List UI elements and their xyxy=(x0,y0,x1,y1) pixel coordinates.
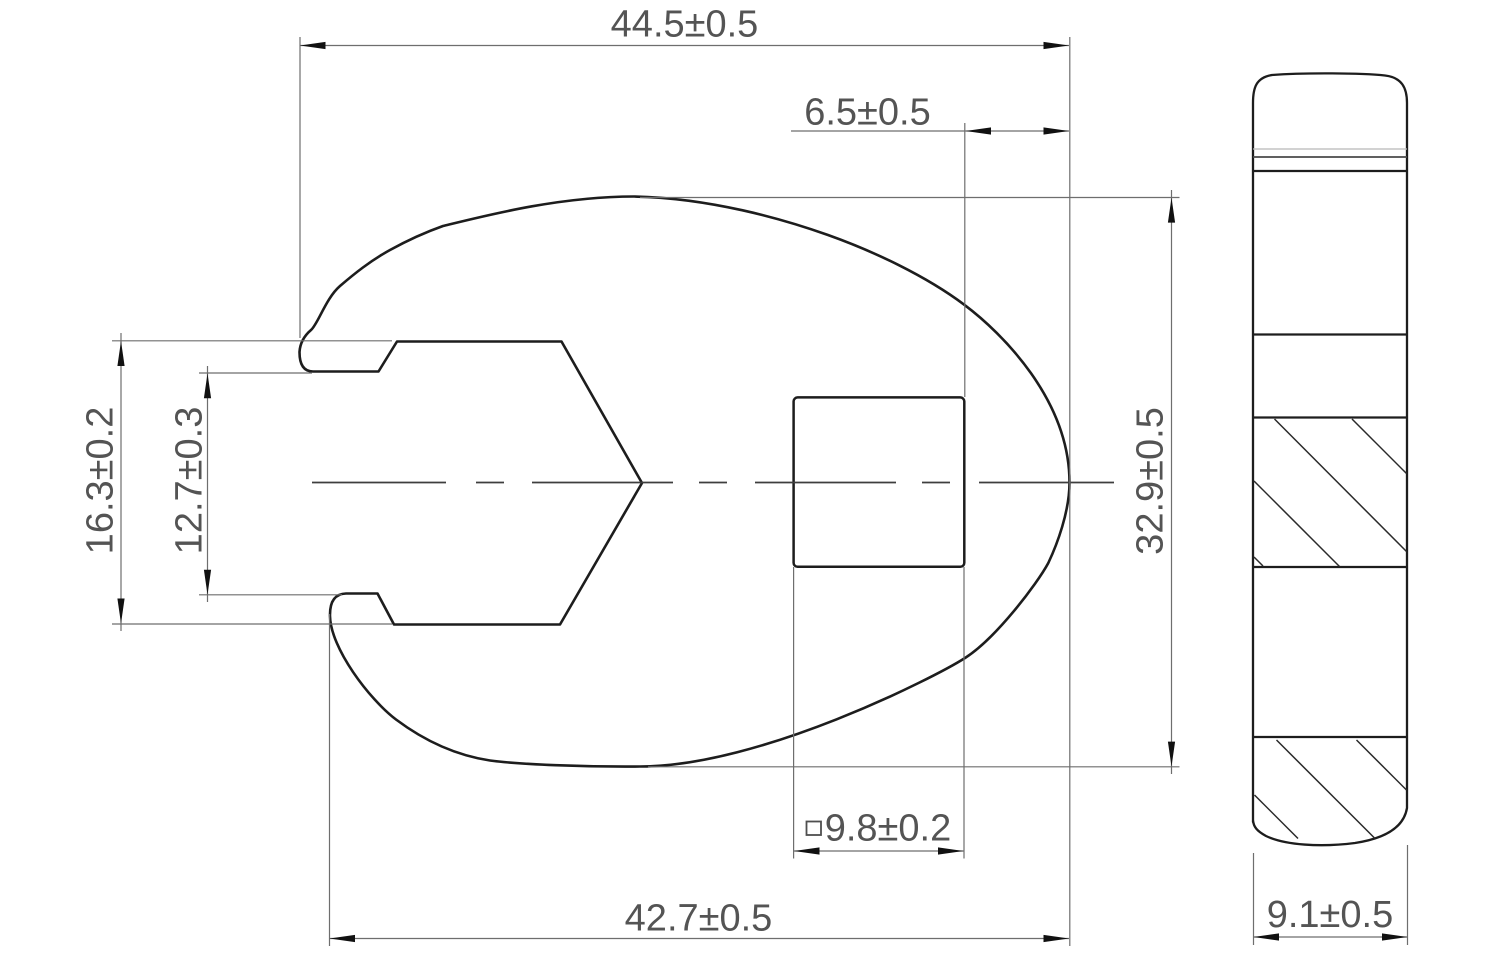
svg-text:9.8±0.2: 9.8±0.2 xyxy=(825,808,952,850)
svg-text:6.5±0.5: 6.5±0.5 xyxy=(804,92,931,134)
svg-text:32.9±0.5: 32.9±0.5 xyxy=(1130,407,1172,555)
svg-text:16.3±0.2: 16.3±0.2 xyxy=(80,407,122,555)
svg-text:44.5±0.5: 44.5±0.5 xyxy=(611,4,759,46)
svg-text:12.7±0.3: 12.7±0.3 xyxy=(169,407,211,555)
svg-text:9.1±0.5: 9.1±0.5 xyxy=(1267,894,1394,936)
svg-text:42.7±0.5: 42.7±0.5 xyxy=(625,898,773,940)
